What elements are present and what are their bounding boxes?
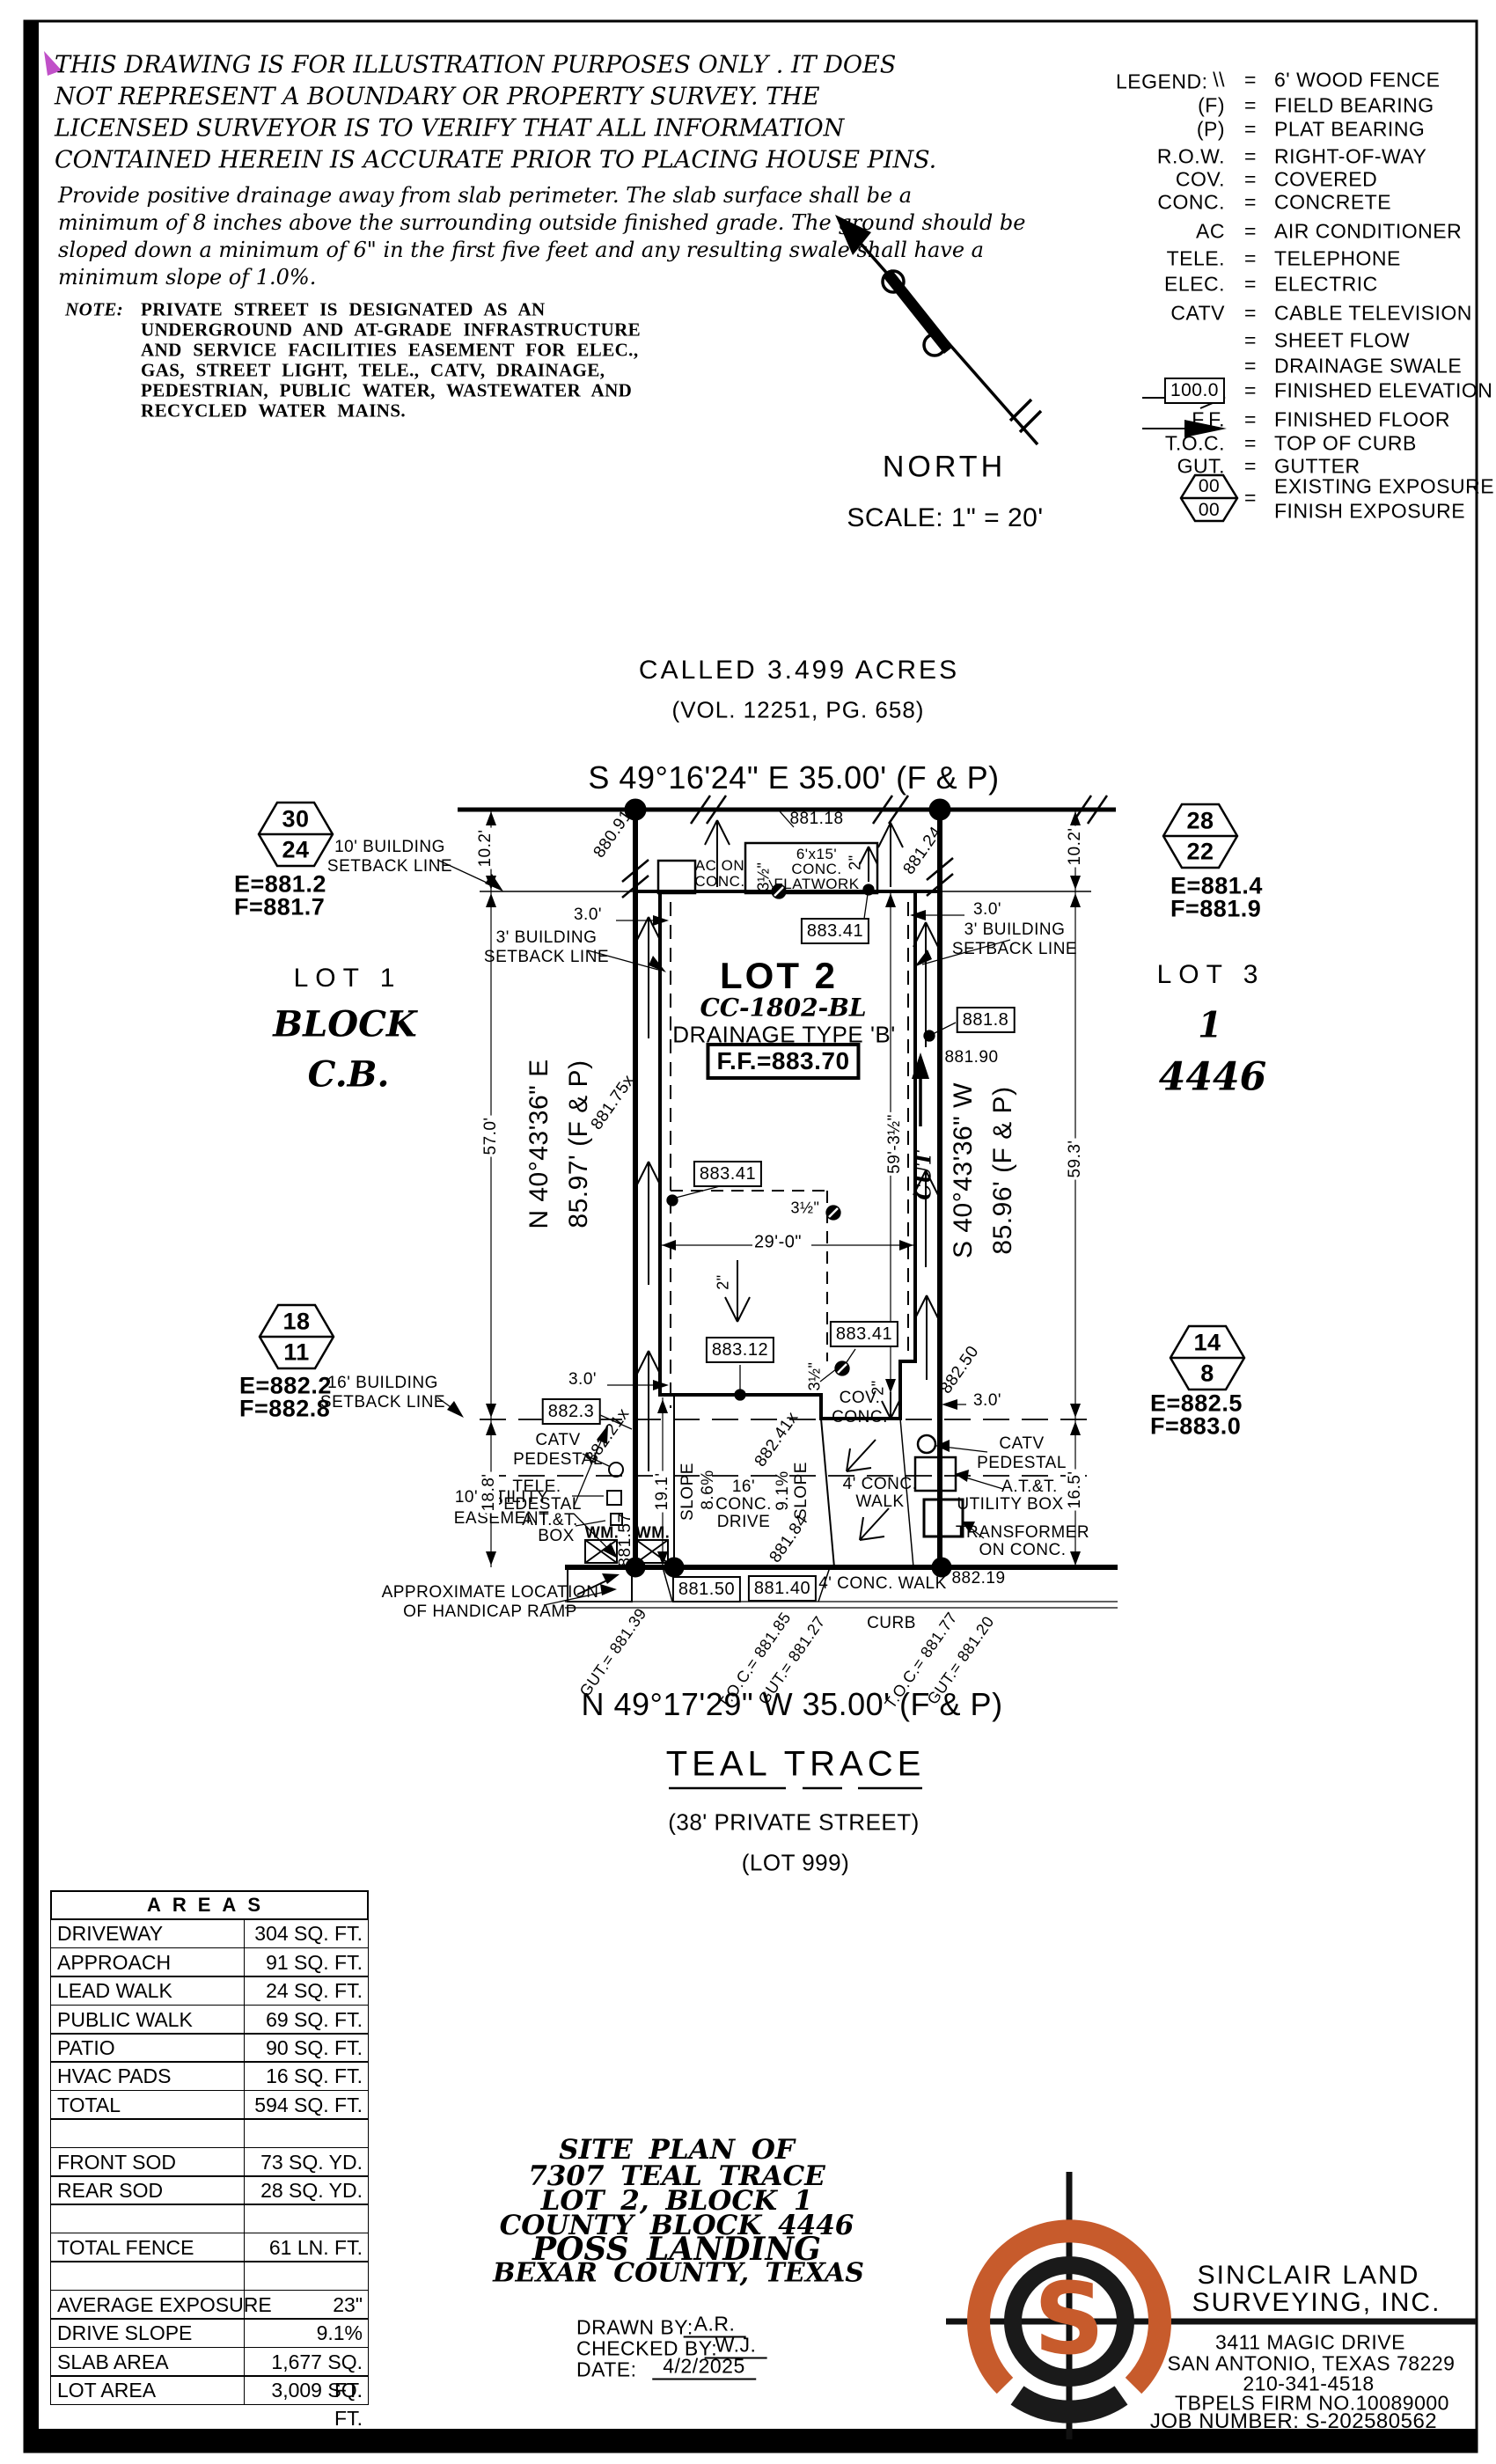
legend-desc: FINISHED ELEVATION: [1274, 379, 1492, 403]
area-value: 24 SQ. FT.: [244, 1976, 368, 2005]
cut-label: CUT: [913, 1151, 936, 1199]
lot2-label: LOT 2: [720, 955, 838, 997]
firm-name: SURVEYING, INC.: [1192, 2288, 1441, 2318]
drainage-note-line: Provide positive drainage away from slab…: [58, 183, 912, 208]
curb-label: CURB: [867, 1614, 916, 1633]
legend-equals: =: [1244, 302, 1257, 326]
finished-elevation-box: 883.41: [801, 918, 869, 944]
county-line: BEXAR COUNTY, TEXAS: [493, 2258, 864, 2289]
legend-equals: =: [1244, 355, 1257, 378]
legend-desc: FINISHED FLOOR: [1274, 408, 1450, 432]
handicap-ramp-label: APPROXIMATE LOCATION: [382, 1583, 599, 1602]
area-label: HVAC PADS: [57, 2062, 172, 2090]
legend-symbol: COV.: [1176, 168, 1225, 192]
legend-desc: SHEET FLOW: [1274, 329, 1410, 353]
cb-word: C.B.: [308, 1054, 390, 1096]
legend-equals: =: [1244, 432, 1257, 456]
catv-pedestal-label: CATV: [535, 1431, 580, 1450]
legend-equals: =: [1244, 273, 1257, 297]
note-line: PRIVATE STREET IS DESIGNATED AS AN: [141, 299, 546, 321]
area-label: APPROACH: [57, 1948, 171, 1976]
north-label: NORTH: [883, 451, 1006, 485]
disclaimer-line: NOT REPRESENT A BOUNDARY OR PROPERTY SUR…: [55, 84, 819, 111]
area-label: PATIO: [57, 2034, 115, 2062]
table-row: PATIO90 SQ. FT.: [50, 2033, 369, 2063]
dim-label: 59.3': [1066, 1138, 1085, 1179]
drainage-note-line: minimum slope of 1.0%.: [58, 265, 316, 290]
table-row: APPROACH91 SQ. FT.: [50, 1947, 369, 1977]
marker-top-value: 14: [1193, 1330, 1221, 1357]
legend-equals: =: [1244, 455, 1257, 479]
area-value: 9.1%: [244, 2319, 368, 2347]
legend-equals: =: [1244, 408, 1257, 432]
called-acres: CALLED 3.499 ACRES: [639, 656, 959, 686]
note-line: AND SERVICE FACILITIES EASEMENT FOR ELEC…: [141, 340, 638, 362]
marker-finish: F=881.7: [234, 894, 325, 921]
legend-equals: =: [1244, 94, 1257, 118]
setback-3-label: 3' BUILDING: [496, 928, 598, 948]
area-value: 23": [244, 2291, 368, 2319]
att-box-label: BOX: [538, 1527, 575, 1546]
legend-title: LEGEND:: [1116, 70, 1207, 94]
area-label: LEAD WALK: [57, 1976, 172, 2005]
spot-elevation: 881.90: [944, 1048, 998, 1067]
legend-equals: =: [1244, 220, 1257, 244]
flatwork-label: FLATWORK: [774, 876, 859, 893]
legend-symbol: F.F.: [1192, 408, 1225, 432]
area-label: LOT AREA: [57, 2376, 156, 2404]
legend-symbol: CONC.: [1157, 191, 1225, 215]
drainage-note-line: minimum of 8 inches above the surroundin…: [58, 210, 1025, 235]
area-label: DRIVE SLOPE: [57, 2319, 192, 2347]
legend-equals: =: [1244, 379, 1257, 403]
table-row: TOTAL594 SQ. FT.: [50, 2090, 369, 2120]
setback-3-label: SETBACK LINE: [484, 948, 609, 967]
dim-label: 10.2': [1066, 825, 1085, 867]
att-utility-box-label: A.T.&T.: [1001, 1478, 1058, 1497]
plan-code: CC-1802-BL: [700, 994, 866, 1023]
dim-label: 2": [869, 1380, 888, 1395]
legend-symbol: R.O.W.: [1157, 145, 1225, 169]
dim-label: 57.0': [481, 1115, 501, 1156]
area-value: 61 LN. FT.: [244, 2233, 368, 2262]
street-type: (38' PRIVATE STREET): [668, 1809, 920, 1837]
cov-conc-label: CONC.: [832, 1408, 888, 1427]
setback-10-label: SETBACK LINE: [327, 857, 452, 876]
scale-label: SCALE: 1" = 20': [847, 503, 1043, 533]
date-value: 4/2/2025: [652, 2355, 756, 2380]
dim-label: 2": [715, 1274, 733, 1289]
bearing-left: 85.97' (F & P): [564, 1060, 594, 1228]
disclaimer-line: LICENSED SURVEYOR IS TO VERIFY THAT ALL …: [55, 115, 844, 143]
legend-equals: =: [1244, 168, 1257, 192]
legend-symbol: \\: [1213, 69, 1225, 92]
table-row: HVAC PADS16 SQ. FT.: [50, 2061, 369, 2091]
legend-symbol: CATV: [1170, 302, 1225, 326]
finished-elevation-box: 881.8: [957, 1007, 1016, 1033]
marker-bottom-value: 22: [1186, 839, 1214, 866]
area-value: 16 SQ. FT.: [244, 2062, 368, 2090]
legend-exposure-top: 00: [1199, 476, 1220, 497]
legend-desc: CABLE TELEVISION: [1274, 302, 1472, 326]
area-value: 3,009 SQ. FT.: [244, 2376, 368, 2404]
site-plan-sheet: THIS DRAWING IS FOR ILLUSTRATION PURPOSE…: [0, 0, 1496, 2464]
dim-label: 3.0': [574, 906, 602, 925]
disclaimer-line: CONTAINED HEREIN IS ACCURATE PRIOR TO PL…: [55, 147, 936, 174]
dim-label: 16.5': [1066, 1469, 1085, 1510]
marker-bottom-value: 11: [283, 1339, 310, 1367]
transformer-label: ON CONC.: [979, 1541, 1067, 1560]
drawn-by-label: DRAWN BY:: [576, 2316, 693, 2340]
att-utility-box-label: UTILITY BOX: [957, 1495, 1063, 1514]
table-row: PUBLIC WALK69 SQ. FT.: [50, 2005, 369, 2035]
volume-page: (VOL. 12251, PG. 658): [672, 697, 925, 724]
water-meter-label: WM.: [636, 1524, 670, 1543]
area-label: SLAB AREA: [57, 2348, 169, 2376]
bearing-right: S 40°43'36" W: [949, 1082, 979, 1258]
slope-value: 9.1%: [774, 1470, 793, 1510]
legend-symbol: TELE.: [1167, 247, 1225, 271]
table-row: SLAB AREA1,677 SQ. FT.: [50, 2347, 369, 2377]
setback-3-label: 3' BUILDING: [964, 920, 1066, 940]
legend-desc: CONCRETE: [1274, 191, 1391, 215]
marker-finish: F=883.0: [1150, 1413, 1241, 1441]
drive-label: 16': [732, 1478, 755, 1497]
area-value: 28 SQ. YD.: [244, 2176, 368, 2204]
marker-bottom-value: 24: [282, 837, 309, 864]
area-value: 73 SQ. YD.: [244, 2148, 368, 2176]
dim-label: 18.8': [480, 1471, 499, 1513]
street-name: TEAL TRACE: [666, 1745, 926, 1785]
legend-desc: FINISH EXPOSURE: [1274, 500, 1465, 524]
legend-equals: =: [1244, 329, 1257, 353]
marker-bottom-value: 8: [1200, 1360, 1214, 1388]
ac-pad-label: AC ON: [695, 857, 744, 875]
table-row: [50, 2118, 369, 2148]
dim-label: 10.2': [476, 827, 495, 869]
area-label: AVERAGE EXPOSURE: [57, 2291, 272, 2319]
legend-symbol: T.O.C.: [1165, 432, 1225, 456]
dim-label: 3.0': [973, 1391, 1001, 1411]
note-line: RECYCLED WATER MAINS.: [141, 400, 406, 422]
street-lot: (LOT 999): [742, 1850, 850, 1877]
area-label: PUBLIC WALK: [57, 2006, 193, 2034]
dim-label: 19.1': [653, 1470, 672, 1512]
spot-elevation: 882.19: [951, 1569, 1005, 1588]
area-value: 69 SQ. FT.: [244, 2006, 368, 2034]
note-line: GAS, STREET LIGHT, TELE., CATV, DRAINAGE…: [141, 360, 605, 382]
block-number: 1: [1198, 1005, 1222, 1046]
lead-walk-label: WALK: [855, 1492, 904, 1512]
water-meter-label: WM.: [585, 1524, 619, 1543]
legend-desc: 6' WOOD FENCE: [1274, 69, 1441, 92]
table-row: DRIVE SLOPE9.1%: [50, 2318, 369, 2348]
legend-equals: =: [1244, 69, 1257, 92]
finished-elevation-box: 881.40: [748, 1575, 817, 1602]
spot-elevation: 881.57: [616, 1513, 635, 1566]
legend-equals: =: [1244, 145, 1257, 169]
finished-elevation-box: 883.12: [706, 1337, 774, 1363]
legend-equals: =: [1244, 487, 1257, 510]
table-row: AVERAGE EXPOSURE23": [50, 2290, 369, 2320]
areas-table: AREAS DRIVEWAY304 SQ. FT. APPROACH91 SQ.…: [50, 1890, 369, 2405]
note-line: PEDESTRIAN, PUBLIC WATER, WASTEWATER AND: [141, 380, 632, 402]
legend-equals: =: [1244, 247, 1257, 271]
ac-pad-label: CONC.: [694, 873, 744, 891]
legend-desc: ELECTRIC: [1274, 273, 1378, 297]
drainage-note-line: sloped down a minimum of 6" in the first…: [58, 238, 984, 262]
legend-desc: DRAINAGE SWALE: [1274, 355, 1462, 378]
legend-desc: FIELD BEARING: [1274, 94, 1434, 118]
area-value: [244, 2204, 368, 2233]
firm-logo-monogram: S: [1034, 2262, 1105, 2377]
lot3-label: LOT 3: [1157, 960, 1265, 990]
slope-value: 8.6%: [699, 1470, 718, 1509]
area-label: DRIVEWAY: [57, 1919, 163, 1947]
lead-walk-label: 4' CONC.: [843, 1475, 918, 1494]
transformer-label: TRANSFORMER: [956, 1523, 1089, 1543]
area-value: 1,677 SQ. FT.: [244, 2348, 368, 2376]
area-label: REAR SOD: [57, 2176, 163, 2204]
lot1-label: LOT 1: [294, 964, 402, 994]
table-row: REAR SOD28 SQ. YD.: [50, 2175, 369, 2205]
note-line: UNDERGROUND AND AT-GRADE INFRASTRUCTURE: [141, 319, 641, 341]
legend-exposure-bottom: 00: [1199, 500, 1220, 521]
legend-desc: AIR CONDITIONER: [1274, 220, 1462, 244]
area-value: 90 SQ. FT.: [244, 2034, 368, 2062]
setback-10-label: 10' BUILDING: [334, 838, 445, 857]
legend-equals: =: [1244, 191, 1257, 215]
catv-pedestal-label: CATV: [999, 1434, 1044, 1454]
area-value: 594 SQ. FT.: [244, 2091, 368, 2119]
legend-desc: TELEPHONE: [1274, 247, 1401, 271]
dim-label: 3½": [791, 1199, 820, 1218]
marker-top-value: 18: [282, 1309, 310, 1336]
table-row: [50, 2204, 369, 2233]
slope-label: SLOPE: [792, 1462, 811, 1520]
marker-top-value: 28: [1186, 808, 1214, 835]
legend-symbol: GUT.: [1177, 455, 1225, 479]
legend-symbol: (P): [1197, 118, 1225, 142]
catv-pedestal-label: PEDESTAL: [977, 1454, 1067, 1473]
finished-floor-value: F.F.=883.70: [706, 1043, 860, 1080]
drive-label: DRIVE: [717, 1513, 771, 1532]
table-row: LEAD WALK24 SQ. FT.: [50, 1976, 369, 2006]
legend-desc: EXISTING EXPOSURE: [1274, 475, 1494, 499]
dim-label: 3.0': [973, 900, 1001, 920]
legend-symbol: ELEC.: [1164, 273, 1225, 297]
area-label: TOTAL FENCE: [57, 2233, 194, 2262]
table-row: [50, 2261, 369, 2291]
area-label: FRONT SOD: [57, 2148, 176, 2176]
legend-desc: RIGHT-OF-WAY: [1274, 145, 1426, 169]
dim-label: 3½": [755, 862, 774, 891]
legend-desc: COVERED: [1274, 168, 1377, 192]
finished-elevation-box: 881.50: [672, 1576, 741, 1602]
area-value: [244, 2119, 368, 2147]
cb-number: 4446: [1159, 1055, 1266, 1100]
tele-pedestal-label: TELE.: [512, 1478, 561, 1497]
areas-table-title: AREAS: [50, 1890, 369, 1920]
finished-elevation-box: 883.41: [830, 1321, 898, 1347]
setback-16-label: SETBACK LINE: [320, 1393, 445, 1412]
dim-label: 2": [847, 854, 865, 869]
dim-label: 59'-3½": [885, 1112, 905, 1176]
legend-desc: TOP OF CURB: [1274, 432, 1417, 456]
slope-label: SLOPE: [678, 1463, 698, 1521]
table-row: FRONT SOD73 SQ. YD.: [50, 2147, 369, 2177]
marker-finish: F=882.8: [239, 1396, 330, 1423]
note-label: NOTE:: [65, 299, 123, 321]
legend-equals: =: [1244, 118, 1257, 142]
table-row: LOT AREA3,009 SQ. FT.: [50, 2375, 369, 2405]
bearing-left: N 40°43'36" E: [524, 1059, 554, 1228]
dim-label: 29'-0": [752, 1233, 803, 1253]
table-row: TOTAL FENCE61 LN. FT.: [50, 2233, 369, 2262]
dim-label: 3.0': [568, 1370, 597, 1390]
legend-symbol: 100.0: [1164, 378, 1225, 404]
finished-elevation-box: 882.3: [542, 1398, 601, 1425]
block-word: BLOCK: [273, 1004, 416, 1045]
job-number: JOB NUMBER: S-202580562: [1150, 2409, 1437, 2434]
dim-label: 3½": [806, 1362, 825, 1391]
public-walk-label: 4' CONC. WALK: [818, 1574, 947, 1594]
legend-desc: PLAT BEARING: [1274, 118, 1425, 142]
area-value: 91 SQ. FT.: [244, 1948, 368, 1976]
firm-name: SINCLAIR LAND: [1198, 2261, 1420, 2291]
table-row: DRIVEWAY304 SQ. FT.: [50, 1918, 369, 1948]
handicap-ramp-label: OF HANDICAP RAMP: [403, 1602, 577, 1622]
area-label: TOTAL: [57, 2091, 121, 2119]
spot-elevation: 881.18: [789, 810, 843, 829]
area-value: [244, 2262, 368, 2290]
marker-finish: F=881.9: [1170, 896, 1261, 923]
bearing-top: S 49°16'24" E 35.00' (F & P): [588, 759, 999, 796]
legend-symbol: AC: [1196, 220, 1225, 244]
area-value: 304 SQ. FT.: [244, 1919, 368, 1947]
date-label: DATE:: [576, 2358, 637, 2382]
disclaimer-line: THIS DRAWING IS FOR ILLUSTRATION PURPOSE…: [55, 52, 896, 79]
marker-top-value: 30: [282, 806, 309, 833]
setback-16-label: 16' BUILDING: [327, 1374, 438, 1393]
bearing-right: 85.96' (F & P): [988, 1086, 1018, 1254]
firm-address: 3411 MAGIC DRIVE: [1215, 2331, 1405, 2355]
legend-symbol: (F): [1198, 94, 1225, 118]
finished-elevation-box: 883.41: [693, 1161, 762, 1187]
setback-3-label: SETBACK LINE: [952, 940, 1077, 959]
drive-label: CONC.: [715, 1495, 772, 1514]
